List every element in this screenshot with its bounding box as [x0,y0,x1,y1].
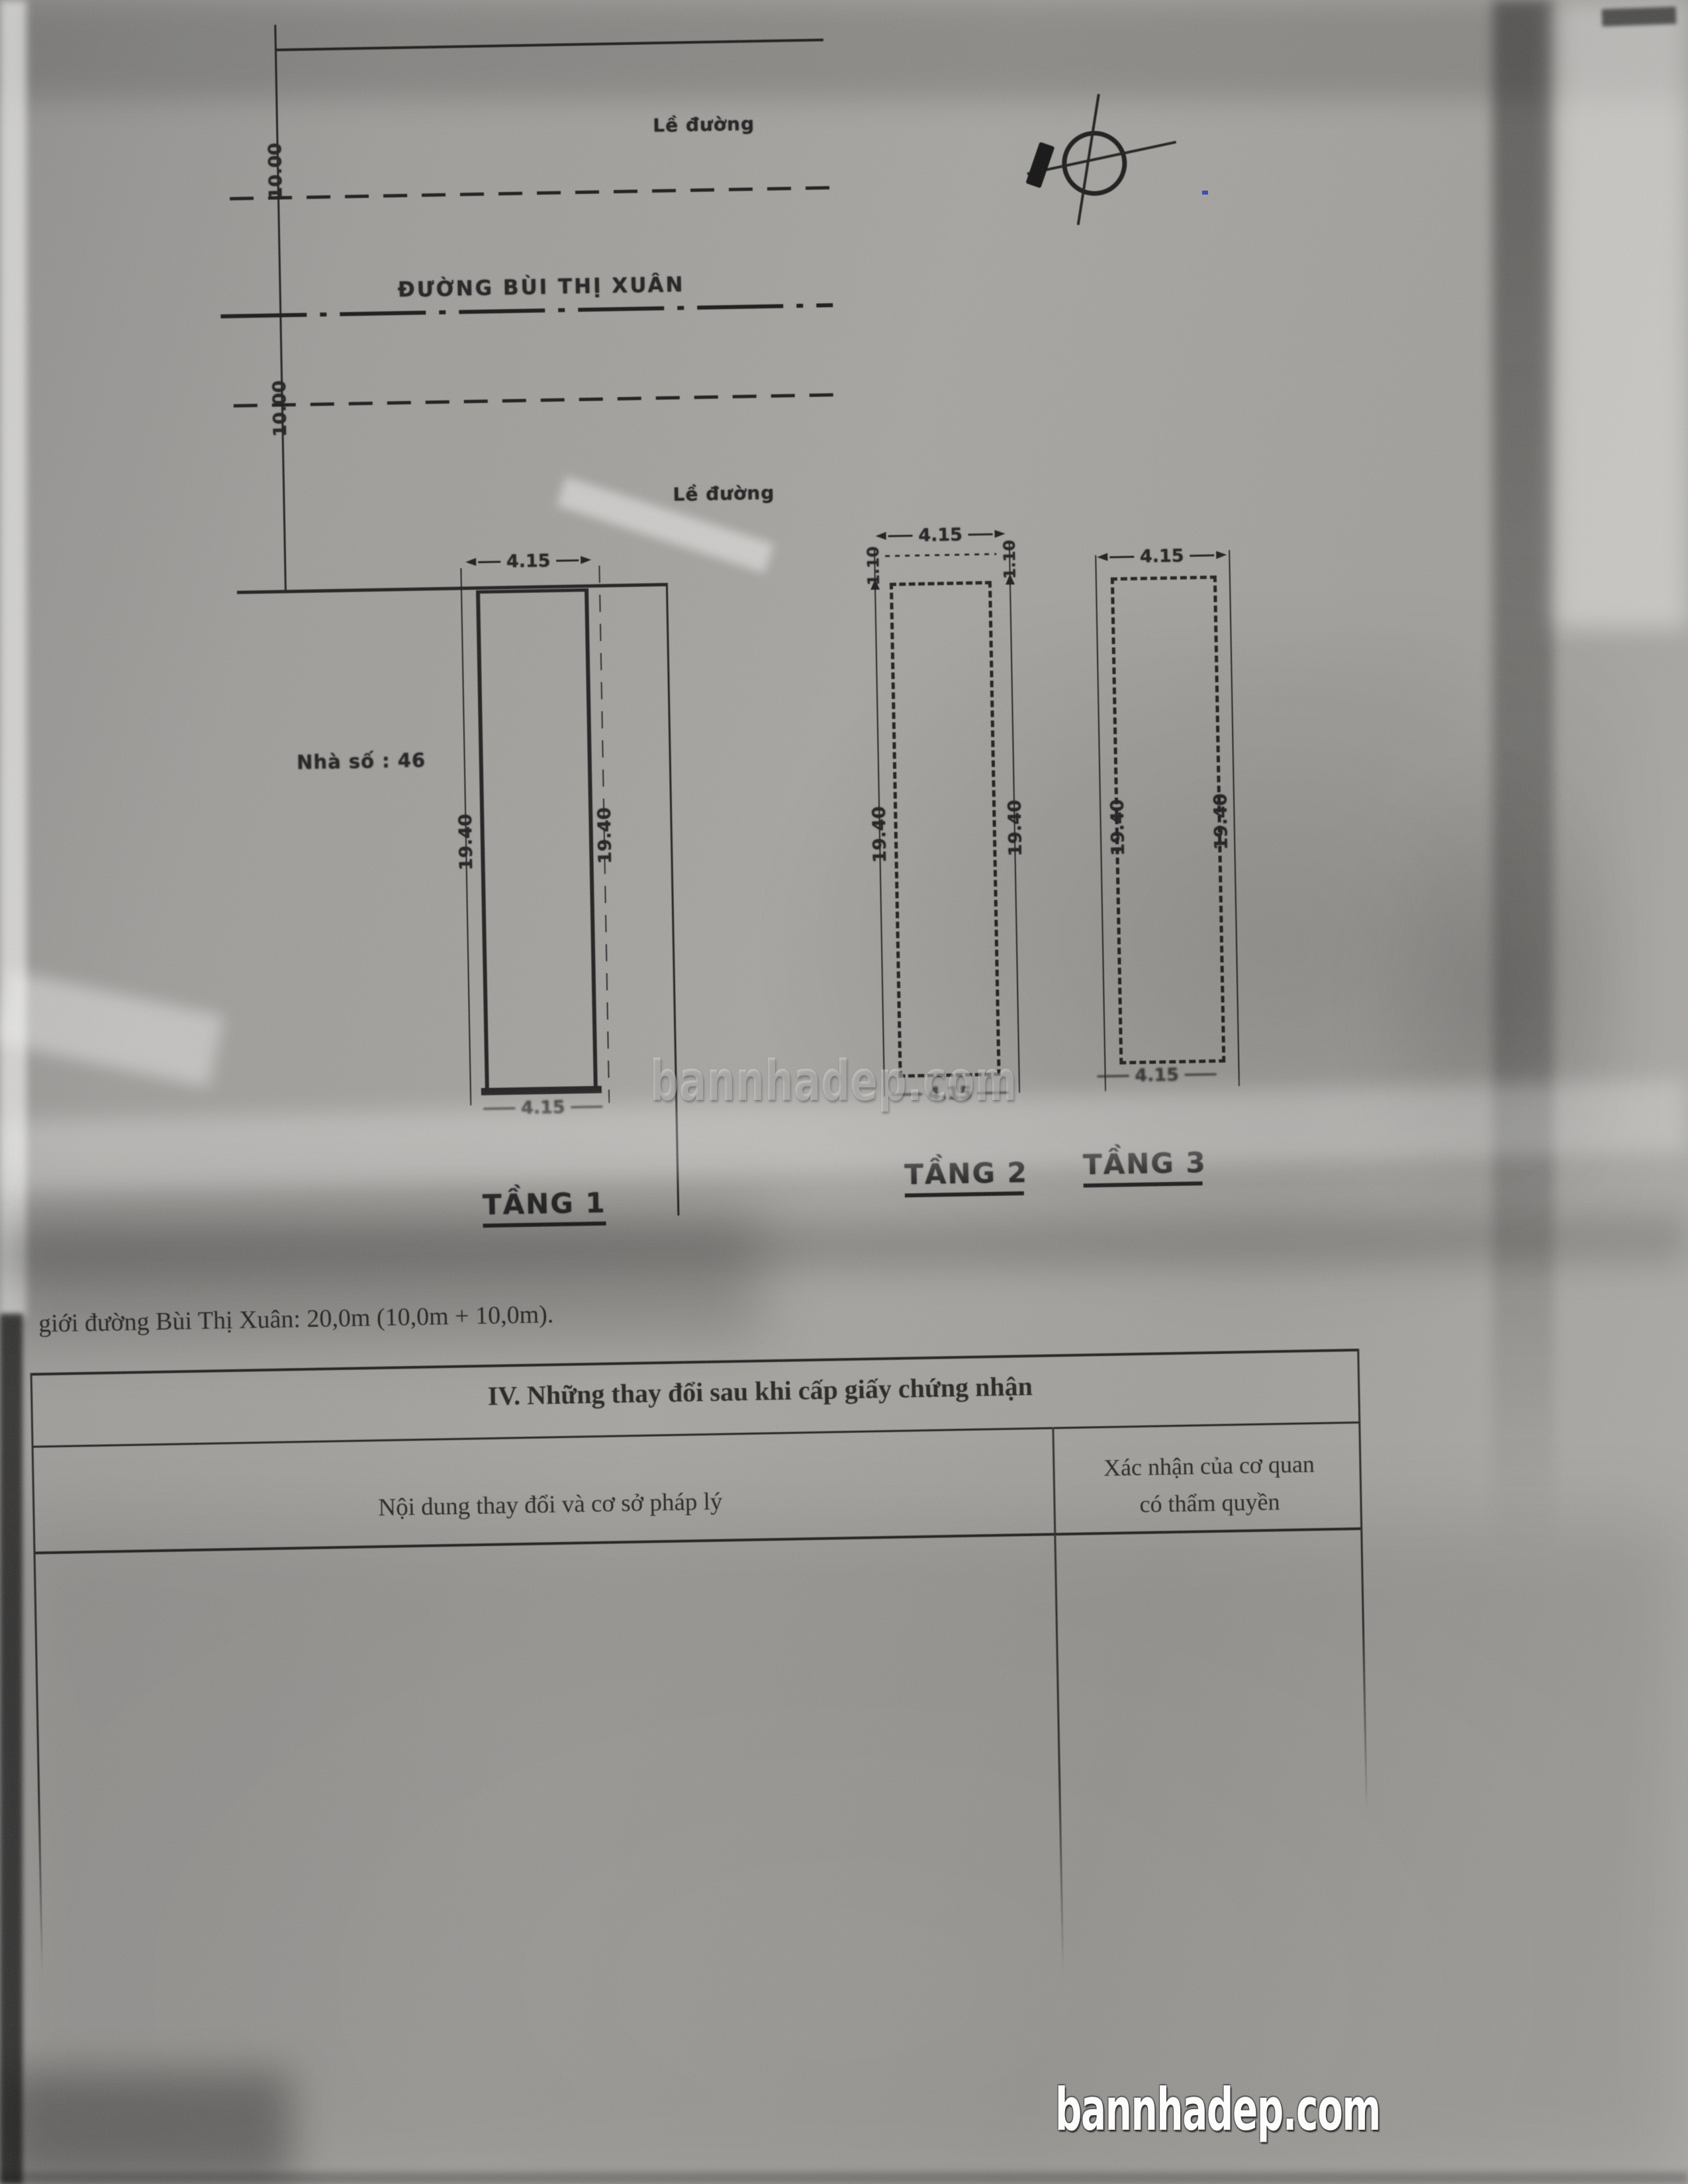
road-width-dim-bottom-value: 10.00 [269,380,291,437]
north-arrow-icon [1014,86,1202,242]
dim-arrow-left [1097,553,1107,561]
floor1-width-dim-bottom: 4.15 [483,1097,603,1118]
scanned-document-page: Lề đường ĐƯỜNG BÙI THỊ XUÂN 10.00 10.00 … [0,0,1688,2184]
table-left-border [30,1373,44,1974]
sidewalk-label-bottom: Lề đường [651,481,797,506]
street-name-label: ĐƯỜNG BÙI THỊ XUÂN [395,273,687,302]
floor2-depth-left-value: 19.40 [869,806,891,863]
table-section-title: IV. Những thay đổi sau khi cấp giấy chứn… [164,1365,1356,1418]
floor3-width-dim-top: 4.15 [1097,545,1227,567]
floor2-tick-left [870,579,880,590]
north-bold-stroke [1025,142,1055,188]
sidewalk-label-top: Lề đường [631,113,777,137]
floor1-width-top-value: 4.15 [502,550,555,571]
plan-divider-line [666,583,680,1216]
floor2-outline [890,581,1001,1078]
floor3-depth-right-value: 19.40 [1210,794,1232,850]
floor1-wall-left [476,590,489,1093]
floor3-width-bottom-value: 4.15 [1131,1064,1183,1085]
road-dimension-vertical-line [274,24,287,592]
dim-arrow-right [581,556,591,564]
floor2-tick-right [1006,574,1015,584]
floor2-depth-right-value: 19.40 [1004,799,1026,856]
floor1-bottom-edge [481,1086,602,1095]
watermark-center: bannhadep.com [650,1048,1017,1113]
dim-line [1109,555,1134,558]
property-boundary-line [237,583,668,594]
house-number-label: Nhà số : 46 [278,749,444,774]
dim-line [556,559,579,562]
dim-line [968,533,993,535]
dim-arrow-left [876,532,886,540]
road-dashed-line-2 [234,393,835,408]
floor1-depth-left-value: 19.40 [455,813,477,870]
dim-line [1098,1075,1129,1077]
floor2-offset-right-value: 1.10 [1000,539,1019,579]
floor-label-tang-2: TẦNG 2 [904,1156,1024,1197]
dim-line [888,534,913,537]
watermark-corner: bannhadep.com [1055,2075,1380,2144]
floor2-width-dim-top: 4.15 [875,523,1006,546]
road-dashed-line-1 [230,186,831,201]
floor3-depth-left-value: 19.40 [1107,799,1129,856]
floor2-width-top-value: 4.15 [914,524,966,545]
road-centerline [220,303,833,318]
table-right-border [1357,1349,1368,1812]
floor3-width-dim-bottom: 4.15 [1097,1064,1217,1086]
note-text: giới đường Bùi Thị Xuân: 20,0m (10,0m + … [38,1291,1032,1338]
floor1-width-dim-top: 4.15 [465,550,592,572]
floor-label-tang-3: TẦNG 3 [1083,1146,1203,1187]
dim-line [1190,554,1215,557]
dim-line [483,1107,515,1110]
floor2-dotted-line [885,553,996,557]
dim-line [478,561,500,563]
table-column-divider [1052,1427,1064,1973]
table-mid-border [32,1422,1361,1448]
floor1-depth-right-value: 19.40 [594,807,616,864]
dim-line [571,1105,603,1108]
dim-arrow-left [465,558,476,566]
dim-line [1185,1073,1217,1075]
floor1-width-bottom-value: 4.15 [517,1097,569,1118]
dim-arrow-right [1216,551,1227,559]
dim-arrow-right [994,529,1005,537]
floor3-ext-line-left [1095,555,1106,1091]
road-top-boundary-line [275,38,823,51]
table-col1-header: Nội dung thay đổi và cơ sở pháp lý [47,1481,1054,1528]
floor-label-tang-1: TẦNG 1 [483,1187,606,1228]
floor3-width-top-value: 4.15 [1136,545,1188,567]
table-col2-header-line2: có thẩm quyền [1064,1486,1356,1520]
table-header-bottom-border [34,1527,1363,1555]
road-width-dim-top-value: 10.00 [265,143,287,200]
table-col2-header-line1: Xác nhận của cơ quan [1063,1449,1355,1482]
